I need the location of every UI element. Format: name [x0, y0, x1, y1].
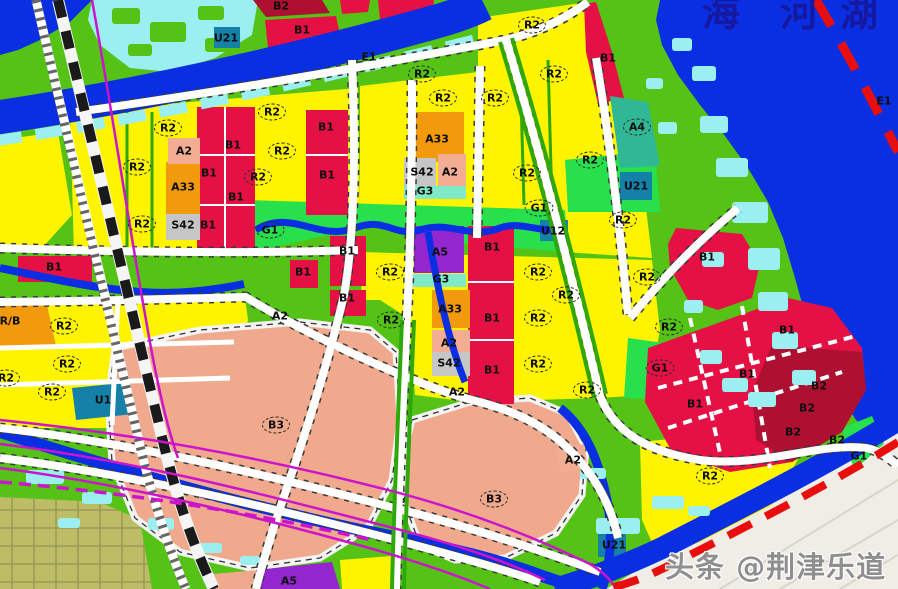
lake-name-char: 海 [702, 0, 740, 37]
land-use-planning-map: B2B1U21E1R2R2R2B1A4R2R2B1A2R2B1R2B1A33R2… [0, 0, 898, 589]
lake-name-char: 河 [780, 0, 818, 37]
map-canvas [0, 0, 898, 589]
lake-name-char: 湖 [840, 0, 878, 37]
watermark-text: 头条 @荆津乐道 [665, 544, 886, 586]
